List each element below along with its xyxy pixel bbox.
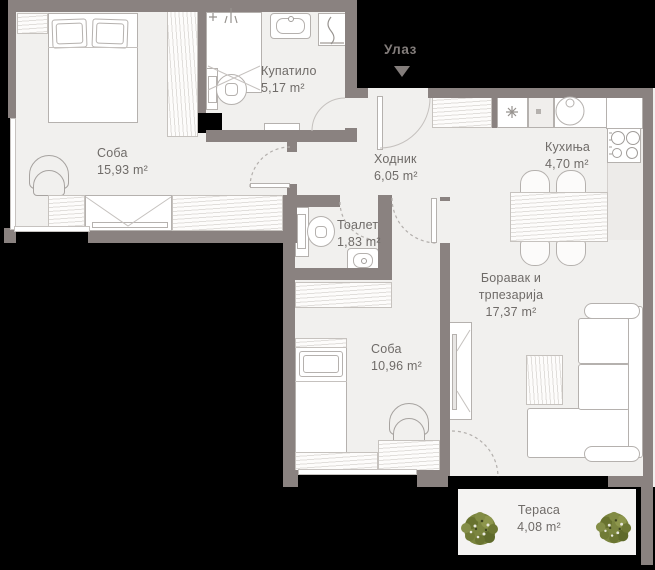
faucet-dot bbox=[288, 16, 294, 22]
wall bbox=[287, 138, 297, 152]
room-area: 10,96 m² bbox=[371, 358, 422, 375]
bed-fold-line bbox=[48, 47, 138, 48]
room-name: трпезарија bbox=[449, 287, 573, 304]
dishwasher bbox=[528, 96, 554, 128]
floor-plan: Улаз Соба 15,93 m² Купатило 5,17 m² Ходн… bbox=[0, 0, 655, 570]
sofa-cushion bbox=[578, 364, 630, 410]
sofa-armrest bbox=[584, 303, 640, 319]
headboard bbox=[295, 338, 347, 348]
pillow bbox=[299, 351, 343, 377]
wall bbox=[295, 268, 378, 280]
wall bbox=[295, 195, 340, 207]
room-name: Купатило bbox=[261, 63, 317, 80]
pillow bbox=[52, 18, 88, 48]
toilet-bowl-inner bbox=[315, 226, 327, 238]
entry-door-leaf bbox=[377, 96, 383, 150]
wall bbox=[345, 12, 357, 98]
pillow-seam bbox=[56, 23, 84, 45]
corner-counter bbox=[606, 96, 643, 129]
dining-chair bbox=[556, 240, 586, 266]
sofa-armrest bbox=[584, 446, 640, 462]
wall bbox=[641, 476, 653, 565]
room-name: Ходник bbox=[374, 151, 418, 168]
toilet-tank bbox=[297, 214, 306, 249]
wall bbox=[643, 98, 653, 487]
room-name: Тоалет bbox=[337, 217, 381, 234]
room-area: 1,83 m² bbox=[337, 234, 381, 251]
outside-gap bbox=[16, 232, 88, 243]
room-label-bathroom: Купатило 5,17 m² bbox=[261, 63, 317, 97]
room-label-bedroom1: Соба 15,93 m² bbox=[97, 145, 148, 179]
outside-gap bbox=[0, 118, 10, 230]
wall bbox=[8, 0, 357, 12]
tv bbox=[452, 334, 457, 410]
wall bbox=[417, 470, 450, 487]
entrance-arrow-icon bbox=[394, 66, 410, 77]
room-label-bedroom2: Соба 10,96 m² bbox=[371, 341, 422, 375]
room-label-kitchen: Кухиња 4,70 m² bbox=[545, 139, 590, 173]
wall bbox=[492, 96, 497, 128]
wall bbox=[198, 12, 206, 115]
sofa-back bbox=[628, 306, 643, 458]
living-door-leaf bbox=[431, 198, 437, 243]
dresser-right bbox=[172, 195, 283, 231]
window bbox=[14, 226, 90, 232]
bathroom-door-opening bbox=[345, 98, 357, 128]
room-area: 5,17 m² bbox=[261, 80, 317, 97]
room-label-living: Боравак и трпезарија 17,37 m² bbox=[449, 270, 573, 321]
washing-machine-door bbox=[320, 42, 344, 44]
sink-counter bbox=[554, 96, 607, 128]
room-area: 4,70 m² bbox=[545, 156, 590, 173]
wall bbox=[428, 88, 653, 98]
drain-dot bbox=[361, 258, 367, 264]
room-label-hallway: Ходник 6,05 m² bbox=[374, 151, 418, 185]
bed-fold-line bbox=[295, 381, 347, 382]
room-area: 4,08 m² bbox=[493, 519, 585, 536]
room-area: 15,93 m² bbox=[97, 162, 148, 179]
wall bbox=[88, 231, 297, 243]
room-area: 17,37 m² bbox=[449, 304, 573, 321]
dresser-shelf bbox=[92, 222, 168, 228]
room-label-toilet: Тоалет 1,83 m² bbox=[337, 217, 381, 251]
pillow-seam bbox=[96, 23, 125, 45]
wall bbox=[608, 476, 645, 487]
kitchen-cabinet bbox=[497, 96, 528, 128]
dining-chair bbox=[520, 240, 550, 266]
sofa-cushion bbox=[578, 318, 630, 364]
window bbox=[10, 118, 16, 230]
armchair-seat bbox=[33, 170, 65, 196]
wall bbox=[352, 88, 368, 98]
stove bbox=[607, 128, 641, 163]
wall bbox=[440, 197, 450, 201]
hall-closet bbox=[432, 96, 492, 128]
wall bbox=[345, 128, 357, 142]
wall bbox=[287, 184, 297, 233]
room-name: Кухиња bbox=[545, 139, 590, 156]
bedroom-door-leaf bbox=[250, 183, 290, 188]
nightstand bbox=[17, 13, 48, 34]
dining-table bbox=[510, 192, 608, 242]
room-name: Соба bbox=[371, 341, 422, 358]
room-name: Тераса bbox=[493, 502, 585, 519]
wall bbox=[206, 130, 345, 142]
toilet-bowl-inner bbox=[225, 83, 238, 96]
room-label-terrace: Тераса 4,08 m² bbox=[493, 502, 585, 536]
wall bbox=[283, 470, 298, 487]
wardrobe bbox=[295, 282, 392, 308]
room-name: Соба bbox=[97, 145, 148, 162]
pillow bbox=[92, 18, 129, 48]
wall bbox=[283, 280, 295, 475]
wardrobe bbox=[167, 9, 198, 137]
window bbox=[298, 469, 417, 475]
entrance-label: Улаз bbox=[384, 42, 417, 57]
wall bbox=[8, 0, 16, 118]
pillow-seam bbox=[303, 355, 339, 373]
coffee-table bbox=[526, 355, 563, 405]
room-area: 6,05 m² bbox=[374, 168, 418, 185]
room-name: Боравак и bbox=[449, 270, 573, 287]
